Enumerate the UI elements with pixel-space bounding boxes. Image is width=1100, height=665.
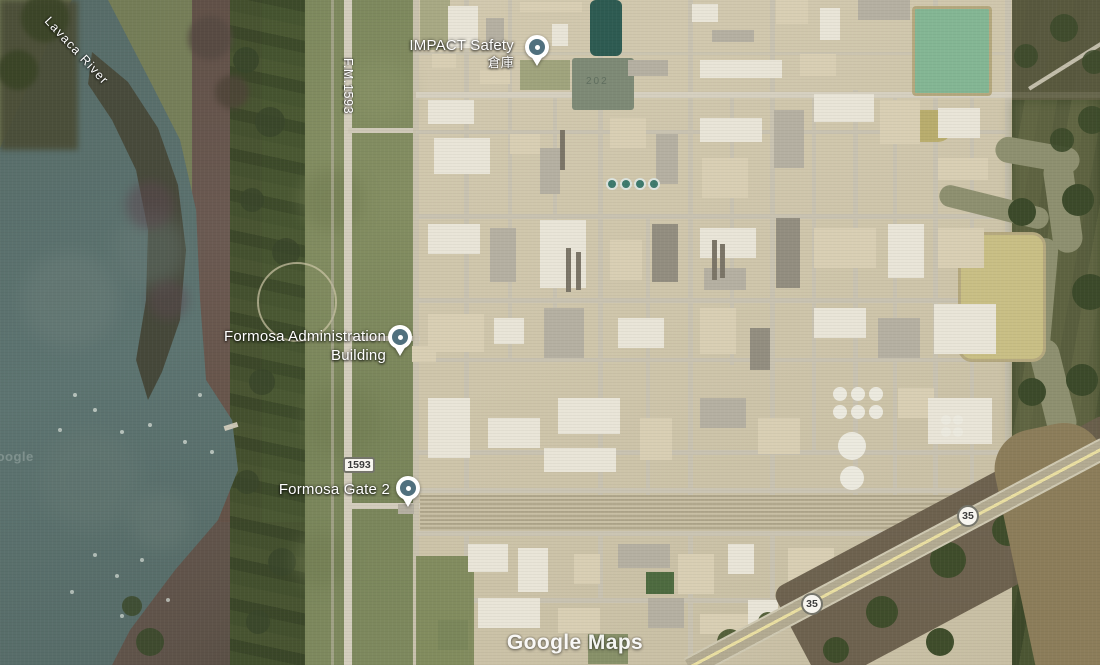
- map-feature: [494, 318, 524, 344]
- map-feature: [823, 637, 849, 663]
- ground-marking: 202: [586, 76, 609, 87]
- route-shield-1593: 1593: [343, 457, 375, 473]
- google-watermark-partial: Google: [0, 449, 34, 464]
- map-pin-formosa-admin-icon[interactable]: [388, 325, 412, 356]
- map-feature: [618, 318, 664, 348]
- map-feature: [938, 108, 980, 138]
- map-feature: [893, 95, 897, 535]
- map-feature: [198, 393, 202, 397]
- map-canvas[interactable]: 202 Lavaca River F.M.1593 1593 35 35 IMP…: [0, 0, 1100, 665]
- map-feature: [249, 369, 275, 395]
- map-feature: [869, 387, 883, 401]
- map-feature: [540, 148, 560, 194]
- map-feature: [438, 620, 468, 650]
- map-feature: [1050, 128, 1074, 152]
- map-feature: [926, 628, 954, 656]
- map-feature: [428, 398, 470, 458]
- map-feature: [1082, 50, 1100, 74]
- map-feature: [700, 60, 782, 78]
- poi-label-line2: 倉庫: [330, 55, 514, 71]
- map-feature: [468, 544, 508, 572]
- map-feature: [1018, 378, 1046, 406]
- map-feature: [518, 548, 548, 592]
- map-feature: [148, 423, 152, 427]
- map-feature: [224, 422, 239, 431]
- google-maps-watermark[interactable]: Google Maps: [475, 631, 675, 655]
- map-feature: [833, 405, 847, 419]
- map-feature: [814, 94, 874, 122]
- map-feature: [776, 0, 808, 24]
- map-feature: [758, 418, 800, 454]
- map-feature: [590, 0, 622, 56]
- map-feature: [348, 128, 418, 133]
- map-feature: [880, 100, 920, 144]
- map-feature: [58, 428, 62, 432]
- map-feature: [628, 60, 668, 76]
- map-feature: [412, 346, 436, 362]
- map-feature: [1014, 44, 1038, 68]
- map-feature: [814, 228, 876, 268]
- route-shield-35-upper: 35: [957, 505, 979, 527]
- map-feature: [774, 110, 804, 168]
- map-feature: [606, 178, 618, 190]
- map-feature: [416, 214, 1010, 219]
- map-feature: [510, 134, 540, 154]
- map-feature: [938, 158, 988, 180]
- poi-label-impact-safety[interactable]: IMPACT Safety 倉庫: [330, 36, 514, 71]
- map-feature: [428, 224, 480, 254]
- map-feature: [700, 228, 756, 258]
- map-feature: [246, 610, 270, 634]
- map-feature: [255, 107, 285, 137]
- map-feature: [858, 0, 910, 20]
- map-feature: [566, 248, 571, 292]
- route-shield-35-lower: 35: [801, 593, 823, 615]
- map-feature: [692, 4, 718, 22]
- map-feature: [520, 2, 582, 12]
- map-feature: [560, 130, 565, 170]
- map-feature: [70, 590, 74, 594]
- map-feature: [851, 405, 865, 419]
- poi-label-line1: IMPACT Safety: [330, 36, 514, 55]
- map-feature: [115, 574, 119, 578]
- map-feature: [416, 450, 1010, 455]
- map-feature: [704, 268, 746, 290]
- map-feature: [941, 415, 951, 425]
- pin-tail: [394, 346, 406, 356]
- map-feature: [1008, 198, 1036, 226]
- map-feature: [878, 318, 920, 358]
- map-feature: [1078, 106, 1100, 134]
- map-feature: [814, 308, 866, 338]
- map-feature: [558, 608, 600, 633]
- map-feature: [712, 30, 754, 42]
- map-feature: [574, 554, 600, 584]
- map-feature: [702, 158, 748, 198]
- map-feature: [648, 598, 684, 628]
- map-feature: [120, 614, 124, 618]
- map-feature: [488, 418, 540, 448]
- map-feature: [912, 6, 992, 96]
- map-feature: [776, 218, 800, 288]
- pin-dot: [398, 335, 403, 340]
- map-feature: [544, 308, 584, 358]
- map-feature: [490, 228, 516, 282]
- map-feature: [40, 430, 140, 530]
- map-feature: [869, 405, 883, 419]
- poi-label-line1: Formosa Gate 2: [200, 480, 390, 499]
- map-feature: [750, 328, 770, 370]
- map-feature: [122, 596, 142, 616]
- poi-label-line1: Formosa Administration: [150, 327, 386, 346]
- map-feature: [558, 398, 620, 434]
- map-feature: [610, 118, 646, 148]
- map-feature: [953, 415, 963, 425]
- map-feature: [648, 178, 660, 190]
- map-feature: [416, 358, 1010, 362]
- map-feature: [140, 558, 144, 562]
- poi-label-line2: Building: [150, 346, 386, 365]
- map-feature: [646, 572, 674, 594]
- map-feature: [73, 393, 77, 397]
- map-pin-impact-safety-icon[interactable]: [525, 35, 549, 66]
- map-feature: [620, 178, 632, 190]
- map-feature: [652, 224, 678, 282]
- map-feature: [953, 427, 963, 437]
- map-feature: [700, 118, 762, 142]
- pin-tail: [531, 56, 543, 66]
- map-feature: [812, 95, 816, 455]
- map-feature: [136, 628, 164, 656]
- map-feature: [240, 188, 264, 212]
- map-feature: [544, 448, 616, 472]
- map-feature: [851, 387, 865, 401]
- map-feature: [22, 252, 118, 348]
- map-feature: [93, 553, 97, 557]
- map-feature: [866, 596, 898, 628]
- map-feature: [434, 138, 490, 174]
- pin-dot: [535, 45, 540, 50]
- map-feature: [416, 488, 1012, 493]
- map-feature: [833, 387, 847, 401]
- map-pin-formosa-gate-2-icon[interactable]: [396, 476, 420, 507]
- map-feature: [120, 430, 124, 434]
- map-feature: [478, 598, 540, 628]
- map-feature: [1072, 274, 1100, 310]
- map-feature: [840, 466, 864, 490]
- poi-label-formosa-admin[interactable]: Formosa Administration Building: [150, 327, 386, 365]
- map-feature: [712, 240, 717, 280]
- map-feature: [700, 308, 736, 354]
- map-feature: [820, 8, 840, 40]
- map-feature: [428, 314, 484, 352]
- map-feature: [210, 450, 214, 454]
- map-feature: [215, 75, 249, 109]
- map-feature: [728, 544, 754, 574]
- map-feature: [130, 490, 190, 550]
- map-feature: [1066, 364, 1098, 396]
- map-feature: [552, 24, 568, 46]
- map-feature: [640, 418, 672, 460]
- map-feature: [610, 240, 642, 280]
- map-feature: [941, 427, 951, 437]
- map-feature: [634, 178, 646, 190]
- map-feature: [678, 554, 714, 594]
- map-feature: [1050, 14, 1078, 42]
- map-feature: [656, 134, 678, 184]
- map-feature: [268, 548, 296, 576]
- map-feature: [480, 70, 510, 84]
- map-feature: [934, 304, 996, 354]
- map-feature: [1062, 184, 1094, 216]
- map-feature: [646, 215, 650, 535]
- map-feature: [576, 252, 581, 290]
- map-feature: [126, 181, 174, 229]
- map-feature: [618, 544, 670, 568]
- map-feature: [838, 432, 866, 460]
- map-feature: [700, 398, 746, 428]
- map-feature: [93, 408, 97, 412]
- map-feature: [720, 244, 725, 278]
- map-feature: [294, 532, 350, 588]
- pin-tail: [402, 497, 414, 507]
- map-feature: [306, 384, 378, 456]
- pin-dot: [406, 486, 411, 491]
- map-feature: [183, 440, 187, 444]
- map-feature: [166, 598, 170, 602]
- map-feature: [888, 224, 924, 278]
- map-feature: [416, 298, 1010, 303]
- map-feature: [428, 100, 474, 124]
- map-feature: [938, 228, 984, 268]
- map-feature: [800, 54, 836, 76]
- poi-label-formosa-gate-2[interactable]: Formosa Gate 2: [200, 480, 390, 499]
- map-feature: [148, 280, 188, 320]
- map-feature: [233, 47, 259, 73]
- map-feature: [188, 16, 232, 60]
- map-feature: [416, 92, 1100, 98]
